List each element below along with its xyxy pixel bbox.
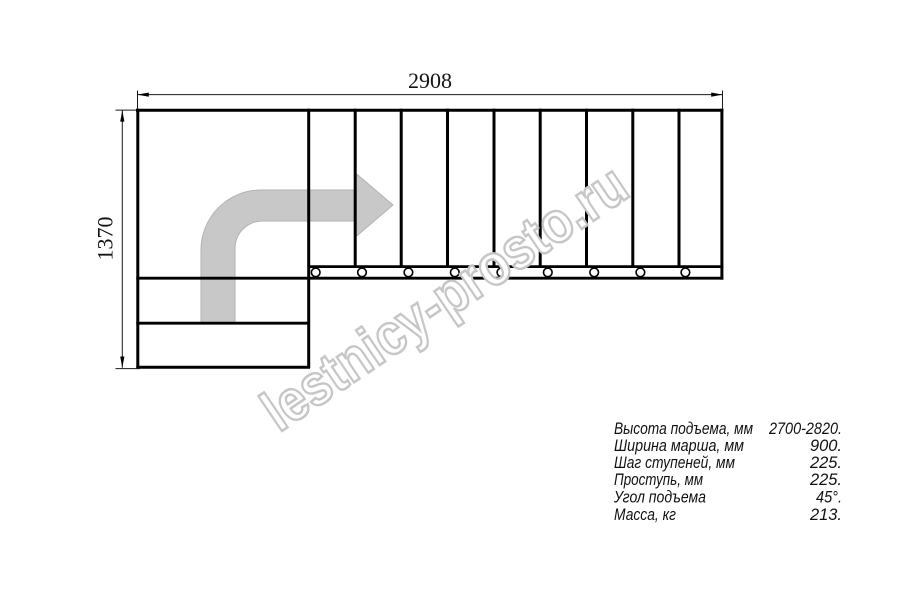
svg-text:213.: 213. [809, 506, 842, 524]
svg-text:Проступь, мм: Проступь, мм [614, 471, 703, 489]
svg-text:45°.: 45°. [816, 489, 842, 507]
svg-text:225.: 225. [809, 454, 842, 472]
svg-text:225.: 225. [809, 471, 842, 489]
svg-text:2908: 2908 [408, 68, 452, 93]
svg-text:1370: 1370 [93, 217, 118, 261]
svg-text:Масса, кг: Масса, кг [614, 506, 676, 524]
svg-text:Шаг ступеней, мм: Шаг ступеней, мм [614, 454, 735, 472]
svg-text:900.: 900. [810, 437, 842, 455]
svg-text:Угол подъема: Угол подъема [613, 489, 706, 507]
svg-text:Ширина марша, мм: Ширина марша, мм [614, 437, 744, 455]
svg-text:Высота подъема, мм: Высота подъема, мм [614, 420, 753, 438]
svg-text:2700-2820.: 2700-2820. [768, 420, 842, 438]
